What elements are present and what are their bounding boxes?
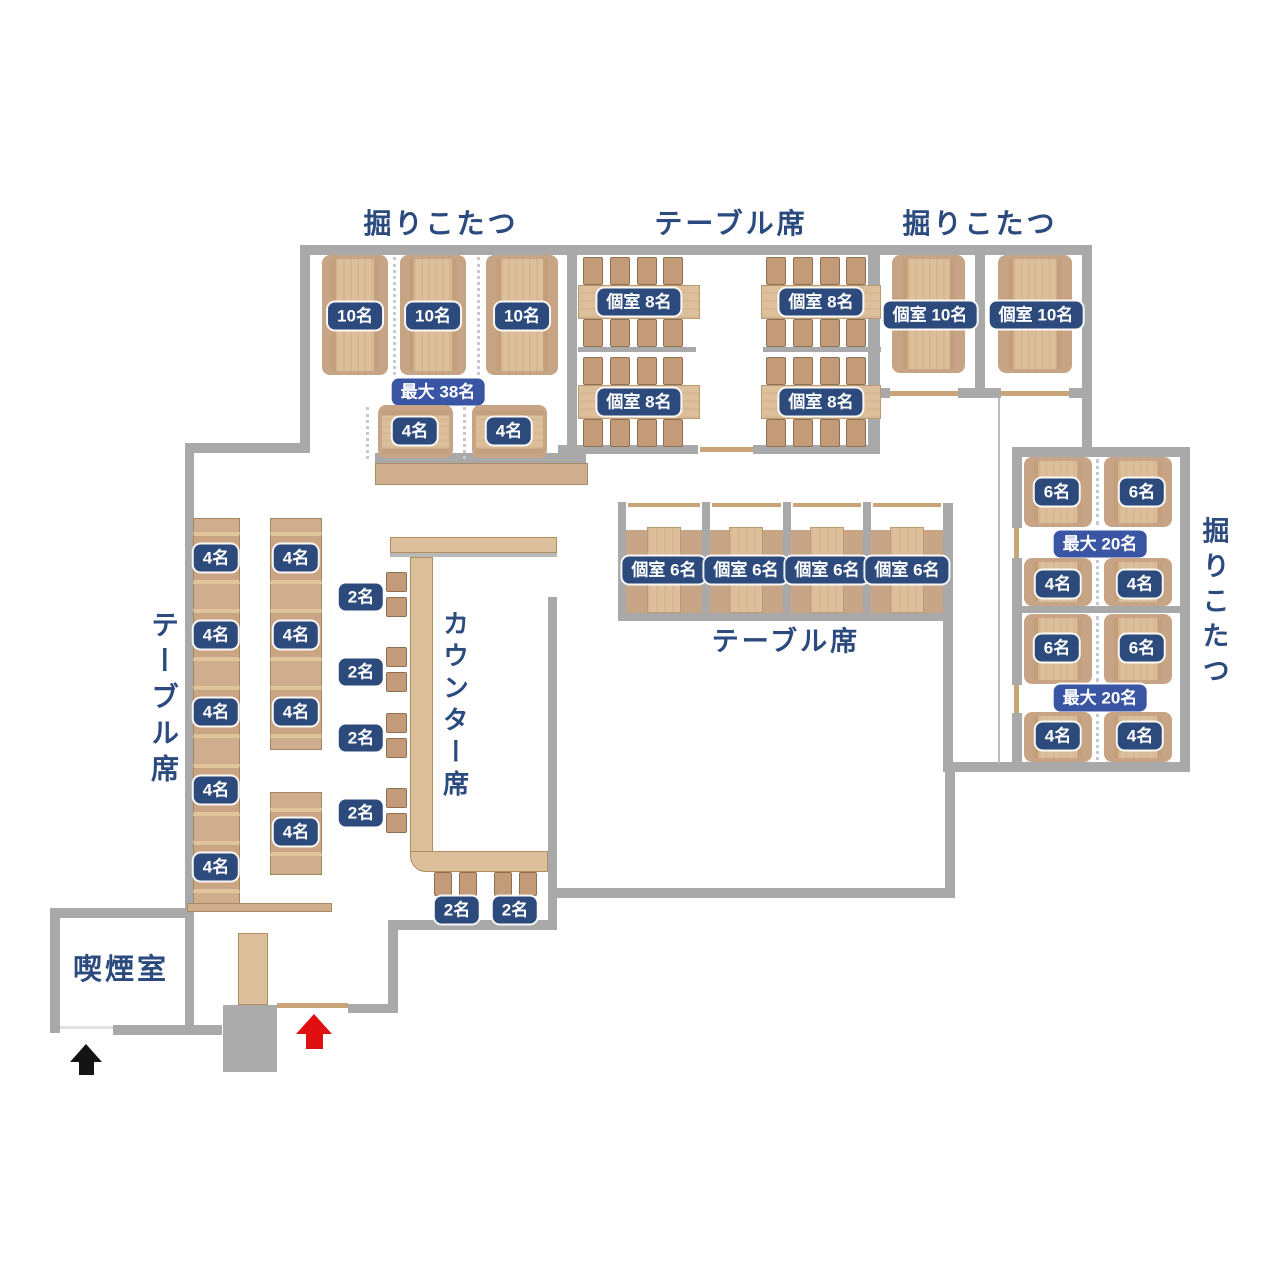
- wall: [943, 503, 953, 772]
- capacity-badge: 2名: [339, 584, 383, 611]
- capacity-badge: 2名: [435, 897, 479, 924]
- capacity-badge: 4名: [393, 418, 437, 445]
- chair: [663, 419, 683, 447]
- sliding-door: [712, 503, 781, 507]
- capacity-badge: 4名: [194, 777, 238, 804]
- chair: [820, 419, 840, 447]
- area-title-table-mid: テーブル席: [712, 620, 860, 659]
- chair: [663, 319, 683, 347]
- chair: [637, 357, 657, 385]
- chair: [386, 713, 407, 733]
- capacity-badge: 4名: [194, 854, 238, 881]
- chair: [846, 257, 866, 285]
- capacity-badge: 4名: [274, 622, 318, 649]
- capacity-badge: 6名: [1035, 635, 1079, 662]
- capacity-badge: 個室 8名: [779, 289, 862, 316]
- max-capacity-badge: 最大 20名: [1054, 531, 1147, 558]
- capacity-badge: 6名: [1035, 479, 1079, 506]
- chair: [610, 319, 630, 347]
- chair: [386, 788, 407, 808]
- max-capacity-badge: 最大 38名: [392, 379, 485, 406]
- chair: [583, 357, 603, 385]
- chair: [637, 257, 657, 285]
- capacity-badge: 10名: [406, 303, 460, 330]
- wall: [348, 1004, 398, 1013]
- wall: [567, 245, 577, 456]
- capacity-badge: 4名: [274, 819, 318, 846]
- capacity-badge: 個室 10名: [990, 302, 1083, 329]
- capacity-badge: 個室 8名: [779, 389, 862, 416]
- partition-dashed-line: [463, 407, 466, 459]
- entrance-door-threshold: [277, 1003, 348, 1008]
- counter-bar: [410, 851, 548, 872]
- capacity-badge: 10名: [328, 303, 382, 330]
- area-title-smoking-room: 喫煙室: [73, 946, 169, 988]
- chair: [663, 257, 683, 285]
- area-title-table-left: テーブル席: [143, 610, 183, 790]
- wall: [1012, 447, 1190, 457]
- capacity-badge: 個室 6名: [865, 557, 948, 584]
- chair: [519, 872, 537, 896]
- capacity-badge: 4名: [274, 545, 318, 572]
- capacity-badge: 2名: [339, 659, 383, 686]
- partition-dashed-line: [1096, 616, 1099, 682]
- capacity-badge: 4名: [194, 699, 238, 726]
- capacity-badge: 6名: [1120, 635, 1164, 662]
- wall: [958, 388, 1001, 398]
- wall: [975, 255, 985, 388]
- wall: [998, 398, 1000, 764]
- chair: [766, 357, 786, 385]
- chair: [386, 597, 407, 617]
- door-threshold: [890, 391, 958, 396]
- chair: [434, 872, 452, 896]
- chair: [766, 319, 786, 347]
- wall: [185, 443, 307, 453]
- chair: [386, 647, 407, 667]
- door-threshold: [1014, 685, 1019, 713]
- capacity-badge: 4名: [194, 545, 238, 572]
- capacity-badge: 4名: [1118, 723, 1162, 750]
- chair: [386, 572, 407, 592]
- capacity-badge: 4名: [1036, 571, 1080, 598]
- partition-dashed-line: [366, 407, 369, 459]
- entrance-arrow-icon: [306, 1034, 323, 1049]
- capacity-badge: 4名: [1036, 723, 1080, 750]
- chair: [610, 357, 630, 385]
- chair: [846, 419, 866, 447]
- sliding-door: [873, 503, 941, 507]
- wall: [763, 347, 881, 352]
- door-threshold: [60, 1026, 113, 1029]
- entrance-arrow-icon: [296, 1014, 332, 1034]
- capacity-badge: 個室 6名: [785, 557, 868, 584]
- chair: [820, 257, 840, 285]
- capacity-badge: 4名: [1118, 571, 1162, 598]
- entrance-partition: [238, 933, 268, 1005]
- wall: [1069, 388, 1092, 398]
- wall: [548, 597, 557, 930]
- max-capacity-badge: 最大 20名: [1054, 685, 1147, 712]
- area-title-table-top: テーブル席: [654, 202, 807, 242]
- chair: [494, 872, 512, 896]
- capacity-badge: 個室 8名: [597, 389, 680, 416]
- wall: [1012, 558, 1022, 685]
- chair: [766, 257, 786, 285]
- wall: [300, 245, 310, 453]
- chair: [386, 672, 407, 692]
- capacity-badge: 4名: [487, 418, 531, 445]
- chair: [386, 738, 407, 758]
- chair: [846, 357, 866, 385]
- chair: [793, 357, 813, 385]
- wall: [552, 888, 955, 898]
- chair: [583, 419, 603, 447]
- wall: [1022, 606, 1180, 613]
- capacity-badge: 個室 10名: [884, 302, 977, 329]
- capacity-badge: 個室 6名: [704, 557, 787, 584]
- chair: [793, 319, 813, 347]
- chair: [583, 257, 603, 285]
- wall: [1180, 447, 1190, 772]
- bench: [375, 463, 588, 485]
- chair: [386, 813, 407, 833]
- chair: [820, 319, 840, 347]
- bench: [187, 903, 332, 912]
- wall: [1082, 245, 1092, 457]
- chair: [766, 419, 786, 447]
- capacity-badge: 2名: [493, 897, 537, 924]
- wall: [945, 762, 955, 898]
- counter-top-shelf: [390, 537, 557, 553]
- wall: [50, 908, 60, 1033]
- chair: [610, 419, 630, 447]
- chair: [846, 319, 866, 347]
- wall: [1012, 447, 1022, 528]
- chair: [793, 419, 813, 447]
- sliding-door: [793, 503, 861, 507]
- capacity-badge: 個室 8名: [597, 289, 680, 316]
- smoking-entrance-arrow-icon: [70, 1044, 102, 1062]
- capacity-badge: 4名: [274, 699, 318, 726]
- chair: [459, 872, 477, 896]
- chair: [637, 419, 657, 447]
- capacity-badge: 6名: [1120, 479, 1164, 506]
- wall: [388, 920, 398, 1013]
- area-title-counter: カウンター席: [437, 610, 474, 802]
- partition-dashed-line: [393, 257, 396, 375]
- area-title-kotatsu-top-right: 掘りこたつ: [902, 202, 1057, 242]
- capacity-badge: 個室 6名: [622, 557, 705, 584]
- floor-plan: 掘りこたつ 10名 10名 10名 最大 38名 4名 4名 テーブル席 個室 …: [0, 0, 1280, 1280]
- wall: [113, 1025, 222, 1035]
- capacity-badge: 2名: [339, 800, 383, 827]
- wall: [300, 245, 1092, 255]
- chair: [820, 357, 840, 385]
- partition-dashed-line: [1096, 459, 1099, 525]
- sliding-door: [628, 503, 700, 507]
- capacity-badge: 2名: [339, 725, 383, 752]
- partition-dashed-line: [477, 257, 480, 375]
- door-threshold: [700, 447, 753, 452]
- chair: [663, 357, 683, 385]
- door-threshold: [1014, 528, 1019, 558]
- area-title-kotatsu-right: 掘りこたつ: [1195, 517, 1234, 692]
- wall: [945, 762, 1190, 772]
- door-threshold: [1001, 391, 1069, 396]
- wall: [50, 908, 193, 918]
- chair: [610, 257, 630, 285]
- capacity-badge: 4名: [194, 622, 238, 649]
- partition-dashed-line: [1096, 714, 1099, 760]
- partition-dashed-line: [1096, 560, 1099, 605]
- counter-bar: [410, 557, 433, 853]
- area-title-kotatsu-top-left: 掘りこたつ: [363, 202, 518, 242]
- entrance-counter-block: [223, 1005, 277, 1072]
- chair: [583, 319, 603, 347]
- smoking-entrance-arrow-icon: [79, 1062, 94, 1075]
- chair: [637, 319, 657, 347]
- capacity-badge: 10名: [495, 303, 549, 330]
- wall: [578, 347, 696, 352]
- chair: [793, 257, 813, 285]
